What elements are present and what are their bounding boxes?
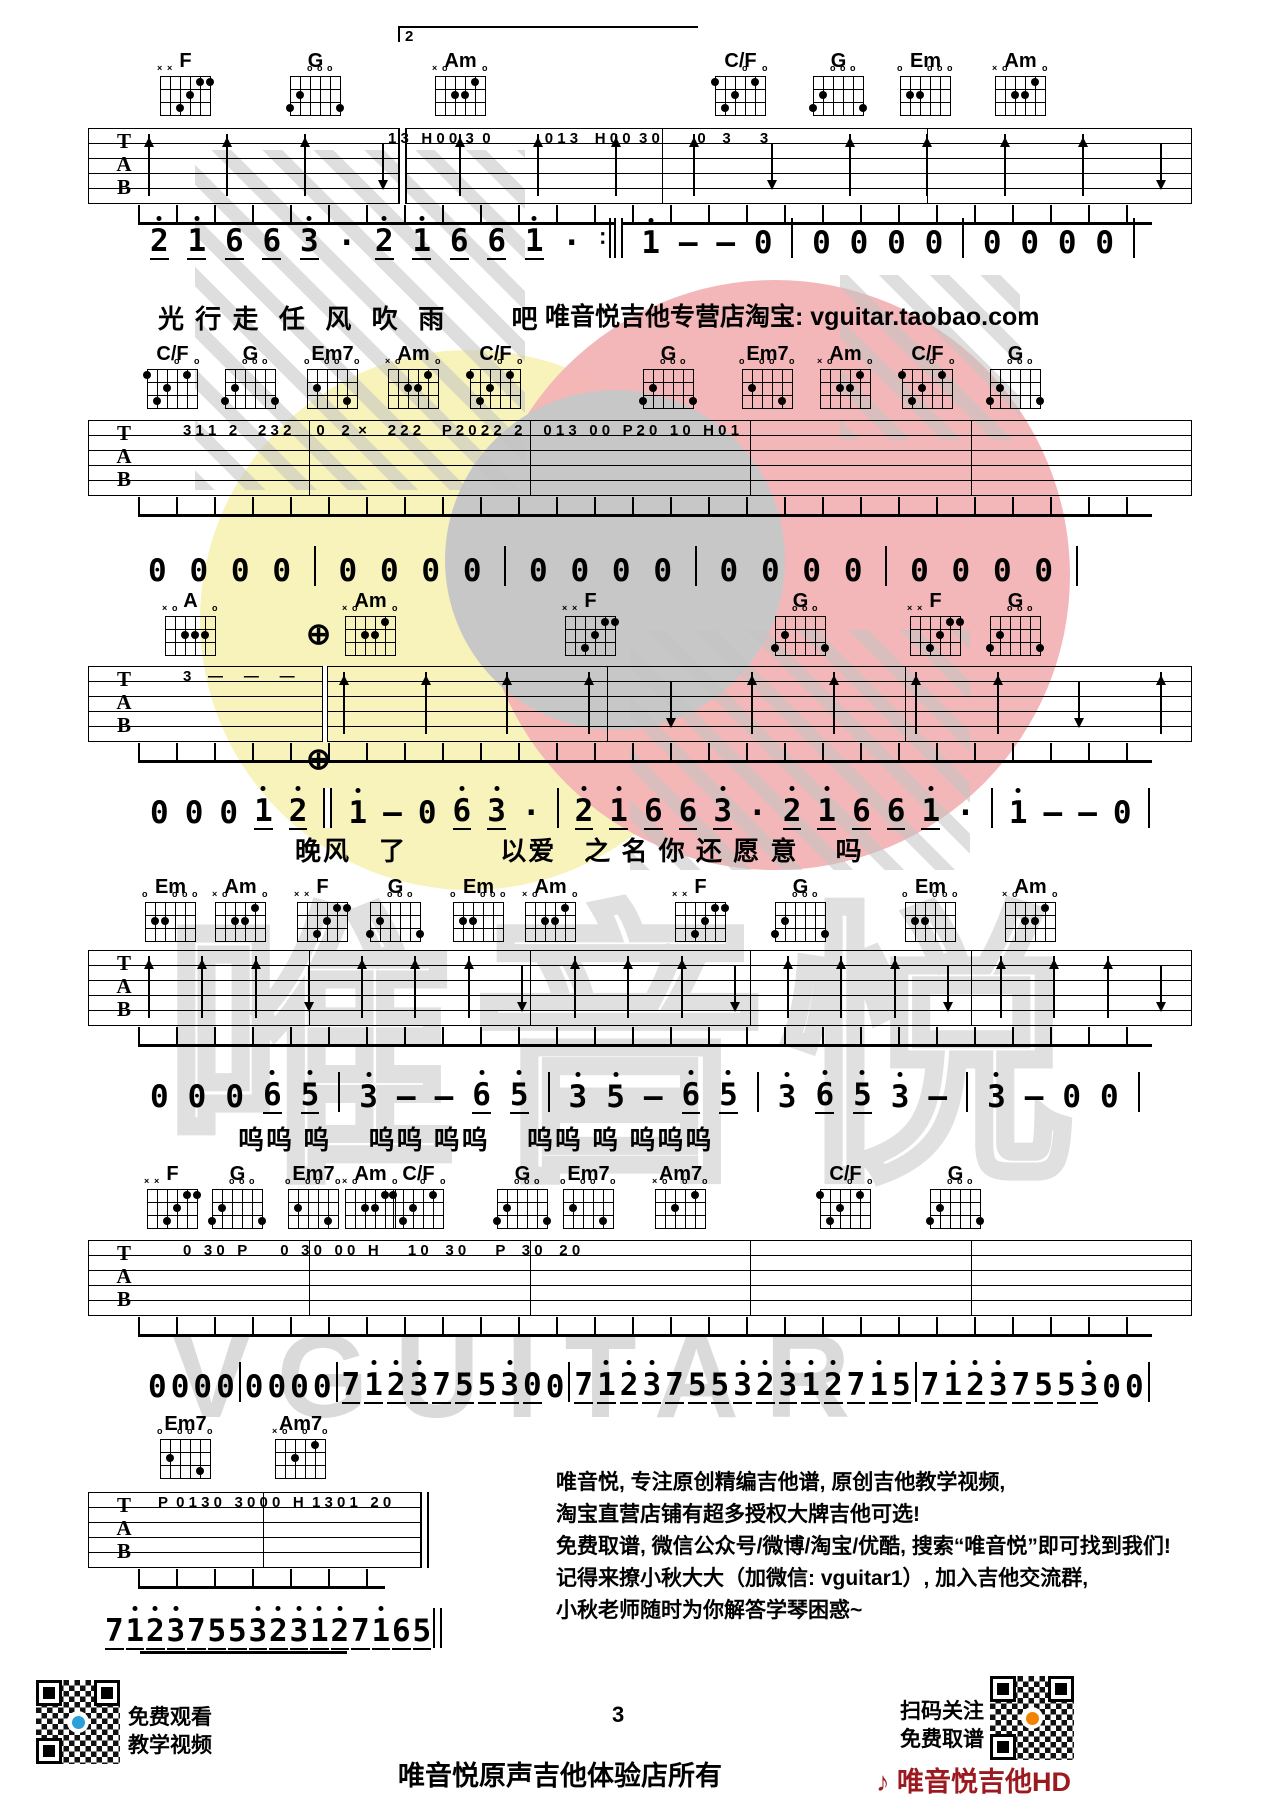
chord-grid xyxy=(290,76,341,116)
jianpu-number: 2 xyxy=(150,224,169,260)
open-string-icon: o xyxy=(229,1176,235,1186)
jianpu-number: 0 xyxy=(529,554,548,588)
dash-hold: — xyxy=(397,1080,416,1114)
open-string-icon: o xyxy=(572,889,578,899)
dash-hold: — xyxy=(1025,1080,1044,1114)
chord-name: C/F xyxy=(724,50,756,73)
jianpu-number: 0 xyxy=(925,226,944,260)
chord-grid xyxy=(453,902,504,942)
jianpu-number: 6 xyxy=(262,224,281,260)
jianpu-number: 1 xyxy=(348,796,367,830)
qr-finder-icon xyxy=(990,1676,1016,1702)
chord-diagram: Am×oo xyxy=(345,590,396,660)
chord-grid xyxy=(775,616,826,656)
chord-finger-dot xyxy=(599,1217,607,1225)
chord-finger-dot xyxy=(639,397,647,405)
strum-up-arrow-icon xyxy=(414,956,416,1018)
open-string-icon: o xyxy=(157,1426,163,1436)
chord-grid xyxy=(147,369,198,409)
open-string-icon: o xyxy=(285,1176,291,1186)
jianpu-number: 3 xyxy=(778,1080,797,1114)
open-string-icon: o xyxy=(305,1176,311,1186)
strum-up-arrow-icon xyxy=(787,956,789,1018)
qr-right-caption-line: 扫码关注 xyxy=(900,1698,984,1726)
chord-diagram: F×× xyxy=(910,590,961,660)
chord-grid xyxy=(1005,902,1056,942)
chord-finger-dot xyxy=(916,91,924,99)
chord-grid xyxy=(160,76,211,116)
jianpu-number: 0 xyxy=(812,226,831,260)
jianpu-number: 0 xyxy=(720,554,739,588)
muted-string-icon: × xyxy=(385,356,390,366)
open-string-icon: o xyxy=(942,889,948,899)
open-string-icon: o xyxy=(840,63,846,73)
chord-finger-dot xyxy=(781,917,789,925)
chord-finger-dot xyxy=(906,91,914,99)
jianpu-number: 2 xyxy=(966,1368,985,1404)
qr-finder-icon xyxy=(36,1738,62,1764)
chord-grid xyxy=(435,76,486,116)
chord-finger-dot xyxy=(836,384,844,392)
open-string-icon: o xyxy=(517,356,523,366)
chord-finger-dot xyxy=(816,1191,824,1199)
open-string-icon: o xyxy=(742,63,748,73)
jianpu-number: 7 xyxy=(665,1368,684,1404)
jianpu-number: 0 xyxy=(570,554,589,588)
dash-hold: — xyxy=(679,226,698,260)
jianpu-number: 0 xyxy=(1100,1080,1119,1114)
chord-diagram: Gooo xyxy=(643,343,694,413)
tab-fret-annotations: 1 3 H 0 0 3 0 0 1 3 H 0 0 3 0 0 3 3 xyxy=(388,130,768,147)
strum-up-arrow-icon xyxy=(343,672,345,734)
chord-finger-dot xyxy=(176,104,184,112)
chord-grid xyxy=(715,76,766,116)
barline xyxy=(557,788,559,828)
dash-hold: — xyxy=(644,1080,663,1114)
strum-up-arrow-icon xyxy=(1160,672,1162,734)
open-string-icon: o xyxy=(1017,356,1023,366)
jianpu-number: 0 xyxy=(189,554,208,588)
chord-finger-dot xyxy=(1021,91,1029,99)
jianpu-number: 6 xyxy=(815,1078,834,1114)
open-string-icon: o xyxy=(952,889,958,899)
chord-diagram: C/Foo xyxy=(393,1163,444,1233)
chord-finger-dot xyxy=(561,904,569,912)
chord-finger-dot xyxy=(946,618,954,626)
jianpu-number: 0 xyxy=(193,1370,212,1404)
barline xyxy=(504,546,506,586)
jianpu-number: 0 xyxy=(993,554,1012,588)
open-string-icon: o xyxy=(322,1426,328,1436)
dotted-rhythm-dot: · xyxy=(522,796,541,830)
chord-finger-dot xyxy=(221,397,229,405)
chord-finger-dot xyxy=(336,104,344,112)
chord-finger-dot xyxy=(1031,78,1039,86)
strum-up-arrow-icon xyxy=(1082,134,1084,196)
strum-down-arrow-icon xyxy=(382,144,384,188)
chord-grid xyxy=(225,369,276,409)
chord-grid xyxy=(905,902,956,942)
jianpu-number: 0 xyxy=(754,226,773,260)
qr-finder-icon xyxy=(94,1680,120,1706)
staff-edge-barline xyxy=(88,1492,89,1568)
open-string-icon: o xyxy=(902,889,908,899)
chord-diagram: Emoooo xyxy=(905,876,956,946)
jianpu-number: 0 xyxy=(245,1370,264,1404)
tab-staff: TAB3 1 1 2 2 3 2 0 2 × 2 2 2 P 2 0 2 2 2… xyxy=(88,420,1192,496)
open-string-icon: o xyxy=(497,356,503,366)
chord-finger-dot xyxy=(493,1217,501,1225)
jianpu-number: 5 xyxy=(413,1614,432,1650)
open-string-icon: o xyxy=(812,889,818,899)
jianpu-number: 2 xyxy=(620,1368,639,1404)
open-string-icon: o xyxy=(702,1176,708,1186)
chord-finger-dot xyxy=(324,1217,332,1225)
jianpu-number: 0 xyxy=(983,226,1002,260)
chord-diagram: Em7oooo xyxy=(160,1413,211,1483)
open-string-icon: o xyxy=(442,63,448,73)
qr-code-teaching-videos xyxy=(36,1680,120,1764)
jianpu-number-line: 000121—063·21663·21661·1——0 xyxy=(150,788,1150,830)
strum-down-arrow-icon xyxy=(521,966,523,1010)
chord-grid xyxy=(147,1189,198,1229)
chord-grid xyxy=(995,76,1046,116)
chord-finger-dot xyxy=(601,618,609,626)
rhythm-beams xyxy=(138,743,1152,763)
open-string-icon: o xyxy=(327,63,333,73)
chord-finger-dot xyxy=(181,631,189,639)
barline xyxy=(1148,1362,1150,1402)
chord-diagram: Gooo xyxy=(497,1163,548,1233)
chord-name: Am xyxy=(397,343,429,366)
chord-diagram: F×× xyxy=(675,876,726,946)
chord-finger-dot xyxy=(908,397,916,405)
staff-edge-barline xyxy=(88,420,89,496)
jianpu-number: 5 xyxy=(892,1368,911,1404)
chord-name: Am xyxy=(1014,876,1046,899)
open-string-icon: o xyxy=(1002,63,1008,73)
open-string-icon: o xyxy=(580,1176,586,1186)
tab-clef-label: TAB xyxy=(116,668,132,737)
chord-finger-dot xyxy=(201,631,209,639)
chord-finger-dot xyxy=(809,104,817,112)
chord-grid xyxy=(165,616,216,656)
open-string-icon: o xyxy=(1007,603,1013,613)
chord-grid xyxy=(910,616,961,656)
chord-finger-dot xyxy=(996,631,1004,639)
jianpu-number: 3 xyxy=(290,1614,309,1650)
open-string-icon: o xyxy=(967,1176,973,1186)
jianpu-number: 0 xyxy=(802,554,821,588)
jianpu-number: 0 xyxy=(523,1368,542,1404)
chord-finger-dot xyxy=(381,1191,389,1199)
dash-hold: — xyxy=(383,796,402,830)
jianpu-number: 6 xyxy=(453,794,472,830)
jianpu-number: 6 xyxy=(450,224,469,260)
chord-diagram: C/Foo xyxy=(147,343,198,413)
barline xyxy=(966,1072,968,1112)
open-string-icon: o xyxy=(932,889,938,899)
jianpu-number: 1 xyxy=(921,794,940,830)
jianpu-number-line: 000653——6535—653653—3—00 xyxy=(150,1072,1140,1114)
strum-up-arrow-icon xyxy=(361,956,363,1018)
open-string-icon: o xyxy=(324,356,330,366)
muted-string-icon: × xyxy=(682,889,687,899)
jianpu-number: 3 xyxy=(987,1080,1006,1114)
chord-finger-dot xyxy=(381,618,389,626)
double-barline xyxy=(323,788,332,828)
chord-finger-dot xyxy=(371,1204,379,1212)
open-string-icon: o xyxy=(524,1176,530,1186)
promo-text-block: 唯音悦, 专注原创精编吉他谱, 原创吉他教学视频, 淘宝直营店铺有超多授权大牌吉… xyxy=(556,1467,1266,1627)
open-string-icon: o xyxy=(949,356,955,366)
open-string-icon: o xyxy=(802,889,808,899)
chord-finger-dot xyxy=(926,644,934,652)
measure-barline xyxy=(750,1240,751,1316)
jianpu-number: 1 xyxy=(254,794,273,830)
strum-up-arrow-icon xyxy=(833,672,835,734)
lyrics-line: 光 行 走 任 风 吹 雨 吧 xyxy=(158,299,539,336)
staff-edge-barline xyxy=(88,128,89,204)
open-string-icon: o xyxy=(947,63,953,73)
open-string-icon: o xyxy=(802,603,808,613)
open-string-icon: o xyxy=(792,603,798,613)
jianpu-number: 1 xyxy=(187,224,206,260)
jianpu-number: 0 xyxy=(267,1370,286,1404)
measure-barline xyxy=(971,1240,972,1316)
strum-down-arrow-icon xyxy=(771,144,773,188)
chord-finger-dot xyxy=(691,1191,699,1199)
jianpu-number: 1 xyxy=(310,1614,329,1650)
chord-finger-dot xyxy=(376,917,384,925)
strum-up-arrow-icon xyxy=(588,672,590,734)
jianpu-number: 7 xyxy=(351,1614,370,1650)
staff-edge-barline xyxy=(1191,420,1192,496)
open-string-icon: o xyxy=(334,356,340,366)
jianpu-number: 6 xyxy=(887,794,906,830)
qr-left-caption-line: 免费观看 xyxy=(128,1704,212,1732)
chord-diagram: Am×oo xyxy=(820,343,871,413)
chord-finger-dot xyxy=(361,631,369,639)
jianpu-number: 0 xyxy=(290,1370,309,1404)
barline xyxy=(548,1072,550,1112)
open-string-icon: o xyxy=(222,889,228,899)
open-string-icon: o xyxy=(192,889,198,899)
jianpu-number: 6 xyxy=(487,224,506,260)
jianpu-number: 5 xyxy=(301,1078,320,1114)
chord-finger-dot xyxy=(591,631,599,639)
rhythm-beams xyxy=(138,1317,1152,1337)
open-string-icon: o xyxy=(759,356,765,366)
strum-up-arrow-icon xyxy=(1000,956,1002,1018)
coda-symbol: ⊕ xyxy=(306,620,331,650)
strum-up-arrow-icon xyxy=(894,956,896,1018)
jianpu-number: 3 xyxy=(733,1368,752,1404)
chord-finger-dot xyxy=(911,917,919,925)
chord-diagram: Am×oo xyxy=(388,343,439,413)
chord-finger-dot xyxy=(986,644,994,652)
tab-staff: TAB3 — — — xyxy=(88,666,1192,742)
open-string-icon: o xyxy=(317,63,323,73)
coda-symbol: ⊕ xyxy=(306,745,331,775)
open-string-icon: o xyxy=(302,1426,308,1436)
open-string-icon: o xyxy=(440,1176,446,1186)
open-string-icon: o xyxy=(514,1176,520,1186)
chord-finger-dot xyxy=(781,631,789,639)
jianpu-number-line: 21663·21661·∶1——000000000 xyxy=(150,218,1135,260)
dotted-rhythm-dot: · xyxy=(956,796,975,830)
chord-diagram: Gooo xyxy=(290,50,341,120)
dotted-rhythm-dot: · xyxy=(748,796,767,830)
jianpu-number: 5 xyxy=(478,1368,497,1404)
tab-staff: TAB0 3 0 P 0 3 0 0 0 H 1 0 3 0 P 3 0 2 0 xyxy=(88,1240,1192,1316)
jianpu-number: 6 xyxy=(679,794,698,830)
open-string-icon: o xyxy=(249,1176,255,1186)
strum-up-arrow-icon xyxy=(997,672,999,734)
double-barline xyxy=(433,1608,442,1648)
chord-finger-dot xyxy=(771,930,779,938)
chord-finger-dot xyxy=(343,397,351,405)
chord-finger-dot xyxy=(751,78,759,86)
staff-edge-barline xyxy=(88,950,89,1026)
dotted-rhythm-dot: · xyxy=(562,226,581,260)
chord-finger-dot xyxy=(551,917,559,925)
jianpu-number: 3 xyxy=(713,794,732,830)
dash-hold: — xyxy=(435,1080,454,1114)
chord-finger-dot xyxy=(186,91,194,99)
jianpu-number: 0 xyxy=(418,796,437,830)
chord-finger-dot xyxy=(846,384,854,392)
tab-clef-label: TAB xyxy=(116,130,132,199)
tab-staff: TAB1 3 H 0 0 3 0 0 1 3 H 0 0 3 0 0 3 3 xyxy=(88,128,1192,204)
jianpu-number: 2 xyxy=(146,1614,165,1650)
chord-diagram: Am7×ooo xyxy=(275,1413,326,1483)
open-string-icon: o xyxy=(682,1176,688,1186)
open-string-icon: o xyxy=(262,356,268,366)
strum-up-arrow-icon xyxy=(915,672,917,734)
open-string-icon: o xyxy=(927,63,933,73)
barline xyxy=(336,1362,338,1402)
chord-grid xyxy=(742,369,793,409)
muted-string-icon: × xyxy=(272,1426,277,1436)
chord-finger-dot xyxy=(778,397,786,405)
jianpu-number: 3 xyxy=(569,1080,588,1114)
jianpu-number: 3 xyxy=(891,1080,910,1114)
tab-clef-label: TAB xyxy=(116,952,132,1021)
chord-finger-dot xyxy=(313,930,321,938)
jianpu-number: 0 xyxy=(910,554,929,588)
chord-finger-dot xyxy=(748,384,756,392)
open-string-icon: o xyxy=(435,356,441,366)
jianpu-number: 2 xyxy=(756,1368,775,1404)
open-string-icon: o xyxy=(182,889,188,899)
jianpu-number: 1 xyxy=(641,226,660,260)
jianpu-number: 0 xyxy=(148,554,167,588)
jianpu-number: 0 xyxy=(148,1370,167,1404)
chord-finger-dot xyxy=(323,917,331,925)
jianpu-number: 0 xyxy=(612,554,631,588)
jianpu-number: 0 xyxy=(761,554,780,588)
open-string-icon: o xyxy=(610,1176,616,1186)
measure-barline xyxy=(750,420,751,496)
repeat-barline: ∶ xyxy=(600,218,623,260)
chord-diagram: C/Foo xyxy=(470,343,521,413)
muted-string-icon: × xyxy=(212,889,217,899)
jianpu-number: 0 xyxy=(952,554,971,588)
jianpu-number: 0 xyxy=(339,554,358,588)
open-string-icon: o xyxy=(590,1176,596,1186)
chord-grid xyxy=(297,902,348,942)
chord-finger-dot xyxy=(918,384,926,392)
jianpu-number: 2 xyxy=(375,224,394,260)
open-string-icon: o xyxy=(929,356,935,366)
open-string-icon: o xyxy=(1042,63,1048,73)
chord-finger-dot xyxy=(183,371,191,379)
chord-finger-dot xyxy=(251,904,259,912)
strum-down-arrow-icon xyxy=(947,966,949,1010)
jianpu-number: 1 xyxy=(126,1614,145,1650)
chord-finger-dot xyxy=(451,91,459,99)
jianpu-number-line: 7123755323127165 xyxy=(105,1608,442,1650)
chord-finger-dot xyxy=(1021,917,1029,925)
chord-finger-dot xyxy=(826,1217,834,1225)
open-string-icon: o xyxy=(827,356,833,366)
chord-name: F xyxy=(694,876,706,899)
muted-string-icon: × xyxy=(672,889,677,899)
chord-finger-dot xyxy=(399,1217,407,1225)
jianpu-number: 1 xyxy=(412,224,431,260)
open-string-icon: o xyxy=(450,889,456,899)
chord-finger-dot xyxy=(898,371,906,379)
chord-name: C/F xyxy=(479,343,511,366)
chord-finger-dot xyxy=(296,91,304,99)
jianpu-number: 1 xyxy=(525,224,544,260)
strum-up-arrow-icon xyxy=(226,134,228,196)
open-string-icon: o xyxy=(937,63,943,73)
jianpu-number: 5 xyxy=(510,1078,529,1114)
chord-diagram: Am×oo xyxy=(995,50,1046,120)
jianpu-number: 0 xyxy=(380,554,399,588)
chord-name: F xyxy=(929,590,941,613)
open-string-icon: o xyxy=(397,889,403,899)
lyrics-line: 晚风 了 以爱 之 名 你 还 愿 意 吗 xyxy=(295,831,864,868)
jianpu-number: 0 xyxy=(185,796,204,830)
chord-finger-dot xyxy=(343,904,351,912)
tab-fret-annotations: 3 1 1 2 2 3 2 0 2 × 2 2 2 P 2 0 2 2 2 0 … xyxy=(183,422,739,439)
jianpu-number: 2 xyxy=(269,1614,288,1650)
chord-name: Am xyxy=(534,876,566,899)
chord-finger-dot xyxy=(471,78,479,86)
muted-string-icon: × xyxy=(817,356,822,366)
jianpu-number: 3 xyxy=(410,1368,429,1404)
jianpu-number: 0 xyxy=(844,554,863,588)
jianpu-number: 2 xyxy=(289,794,308,830)
jianpu-number: 3 xyxy=(642,1368,661,1404)
open-string-icon: o xyxy=(392,603,398,613)
chord-finger-dot xyxy=(163,384,171,392)
chord-finger-dot xyxy=(231,384,239,392)
chord-finger-dot xyxy=(721,104,729,112)
jianpu-number: 0 xyxy=(1034,554,1053,588)
chord-grid xyxy=(160,1439,211,1479)
jianpu-number: 3 xyxy=(359,1080,378,1114)
barline xyxy=(757,1072,759,1112)
jianpu-number: 7 xyxy=(187,1614,206,1650)
footer-brand-red-text: ♪ 唯音悦吉他HD xyxy=(876,1760,1071,1799)
muted-string-icon: × xyxy=(167,63,172,73)
strum-up-arrow-icon xyxy=(148,134,150,196)
jianpu-number: 0 xyxy=(150,796,169,830)
